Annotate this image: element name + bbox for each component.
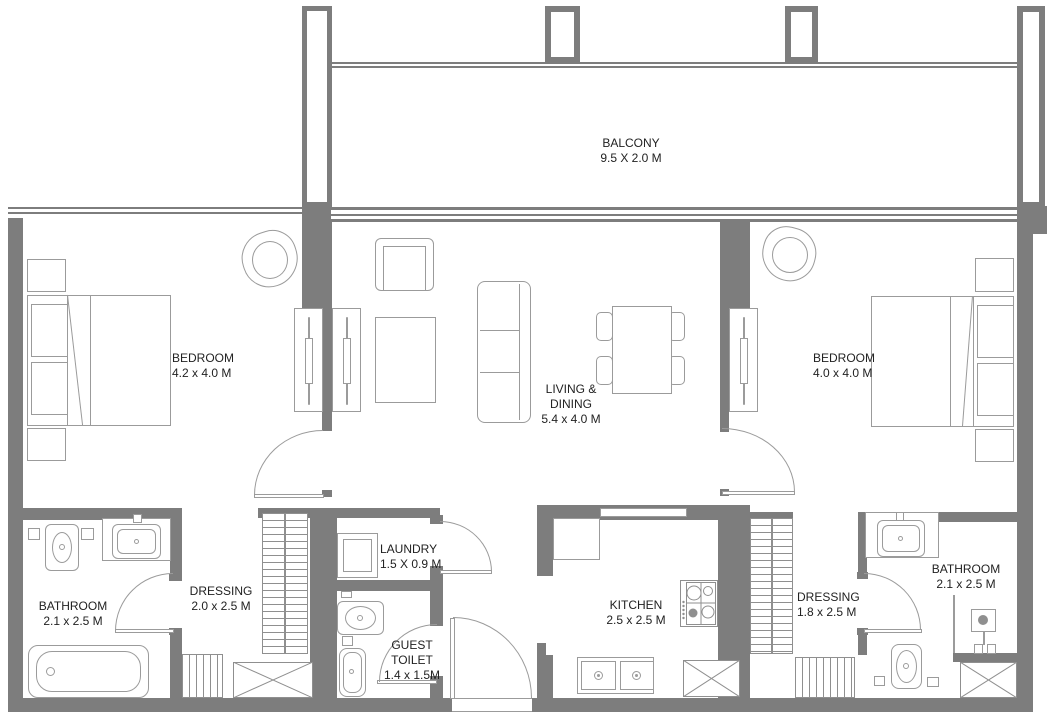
room-name: GUEST bbox=[377, 638, 447, 653]
room-label-bedroom-right: BEDROOM 4.0 x 4.0 M bbox=[813, 351, 903, 381]
panel-handle bbox=[343, 338, 351, 384]
dining-chair bbox=[596, 356, 613, 385]
room-dims: 2.5 x 2.5 M bbox=[596, 613, 676, 628]
column-mid bbox=[545, 6, 580, 63]
stove bbox=[680, 580, 718, 627]
sofa-back-line bbox=[519, 284, 520, 420]
room-dims: 4.0 x 4.0 M bbox=[813, 366, 903, 381]
room-label-bathroom-right: BATHROOM 2.1 x 2.5 M bbox=[926, 562, 1006, 592]
room-label-dressing-right: DRESSING 1.8 x 2.5 M bbox=[797, 590, 867, 620]
toilet-drain bbox=[59, 544, 65, 550]
shaft-x-box bbox=[960, 662, 1017, 698]
door-arc-bathroom-right bbox=[864, 573, 921, 630]
column-right-mid bbox=[785, 6, 818, 63]
wall-bathR-inner bbox=[953, 653, 1017, 662]
room-name: LIVING & bbox=[521, 382, 621, 397]
window-band-bedroom-left bbox=[8, 207, 302, 214]
wardrobe-shelves bbox=[750, 518, 793, 654]
room-dims: 1.8 x 2.5 M bbox=[797, 605, 867, 620]
panel-handle bbox=[305, 338, 313, 384]
wardrobe-panel bbox=[332, 308, 361, 412]
room-name: DRESSING bbox=[797, 590, 867, 605]
wall-kitchen-left-upper bbox=[537, 508, 553, 576]
bed-sheet-line bbox=[90, 295, 91, 426]
panel-handle bbox=[740, 338, 748, 384]
wall-divider-right-wide bbox=[720, 222, 750, 308]
toilet-accessory bbox=[28, 528, 40, 540]
bathR-shower-partition bbox=[953, 595, 955, 653]
wall-kitchen-left-lower2 bbox=[545, 655, 553, 698]
wall-bathL-dressL-lower bbox=[170, 634, 182, 700]
toilet-drain bbox=[357, 615, 363, 621]
wardrobe-panel bbox=[729, 308, 758, 412]
wall-outer-right bbox=[1017, 207, 1033, 712]
shaft-x-box bbox=[683, 660, 740, 697]
closet-hanging bbox=[182, 654, 223, 698]
bed-headboard-line bbox=[973, 296, 974, 427]
shaft-x-box bbox=[233, 662, 313, 698]
pillow bbox=[977, 363, 1014, 416]
wall-corner-block-right bbox=[1017, 206, 1047, 234]
toilet-accessory bbox=[927, 677, 939, 687]
room-name: BEDROOM bbox=[172, 351, 262, 366]
wall-outer-left bbox=[8, 218, 23, 712]
sofa-seat-line bbox=[480, 330, 520, 331]
floor-plan: BALCONY 9.5 X 2.0 M BEDROOM 4.2 x 4.0 M … bbox=[0, 0, 1052, 721]
shower-foot bbox=[974, 644, 983, 654]
kitchen-counter bbox=[553, 518, 600, 560]
dining-chair bbox=[596, 312, 613, 341]
toilet-accessory bbox=[874, 676, 885, 686]
wall-laundry-guestT bbox=[310, 580, 443, 591]
bathtub-drain bbox=[46, 667, 55, 676]
toilet-accessory bbox=[81, 528, 94, 540]
column-left bbox=[302, 6, 332, 207]
room-name: DRESSING bbox=[181, 584, 261, 599]
room-label-balcony: BALCONY 9.5 X 2.0 M bbox=[556, 136, 706, 166]
wall-guestT-right bbox=[430, 573, 443, 623]
paper-holder bbox=[341, 591, 352, 598]
door-arc-laundry bbox=[440, 521, 492, 572]
nightstand bbox=[975, 429, 1014, 462]
bed-headboard-line bbox=[67, 295, 68, 426]
room-label-kitchen: KITCHEN 2.5 x 2.5 M bbox=[596, 598, 676, 628]
pillow bbox=[977, 305, 1014, 358]
balcony-top-rail bbox=[332, 62, 1017, 68]
sofa-seat-line bbox=[480, 372, 520, 373]
sink-drain-dot bbox=[635, 674, 638, 677]
column-left-base bbox=[302, 205, 332, 310]
room-dims: 1.5 X 0.9 M bbox=[380, 557, 442, 572]
room-label-laundry: LAUNDRY 1.5 X 0.9 M bbox=[380, 542, 442, 572]
room-dims: 2.0 x 2.5 M bbox=[181, 599, 261, 614]
door-arc-entrance bbox=[453, 617, 532, 698]
pillow bbox=[31, 304, 68, 357]
sink-tap bbox=[342, 636, 353, 646]
door-arc-bathroom-left bbox=[115, 573, 173, 631]
room-label-guest-toilet: GUEST TOILET 1.4 x 1.5M bbox=[377, 638, 447, 683]
door-hinge bbox=[322, 424, 332, 431]
wardrobe-panel bbox=[294, 308, 323, 412]
closet-hanging bbox=[795, 657, 855, 698]
room-name: BEDROOM bbox=[813, 351, 903, 366]
entrance-threshold bbox=[452, 698, 532, 712]
room-dims: 1.4 x 1.5M bbox=[377, 668, 447, 683]
window-band-living bbox=[331, 207, 1017, 222]
room-dims: 9.5 X 2.0 M bbox=[556, 151, 706, 166]
room-name: LAUNDRY bbox=[380, 542, 442, 557]
sink-drain-dot bbox=[597, 674, 600, 677]
door-arc-bedroom-left bbox=[254, 430, 323, 495]
door-arc-bedroom-right bbox=[722, 428, 795, 492]
washing-machine-inner bbox=[343, 539, 372, 572]
wall-outer-bottom-left bbox=[8, 698, 452, 712]
nightstand bbox=[975, 258, 1014, 292]
toilet-drain bbox=[903, 663, 909, 669]
column-right bbox=[1017, 6, 1045, 208]
bed-sheet-line bbox=[950, 296, 951, 427]
kitchen-top-cabinet bbox=[600, 508, 687, 517]
room-dims: 4.2 x 4.0 M bbox=[172, 366, 262, 381]
wardrobe-rail bbox=[284, 514, 286, 653]
room-dims: 5.4 x 4.0 M bbox=[521, 412, 621, 427]
wardrobe-rail bbox=[771, 519, 773, 653]
shower-foot bbox=[987, 644, 996, 654]
pillow bbox=[31, 362, 68, 415]
armchair-seat bbox=[383, 246, 426, 291]
wall-guestT-right-stub bbox=[430, 683, 443, 699]
room-dims: 2.1 x 2.5 M bbox=[926, 577, 1006, 592]
room-name: TOILET bbox=[377, 653, 447, 668]
nightstand bbox=[27, 428, 66, 461]
tv-unit bbox=[375, 317, 436, 403]
wall-divider-right bbox=[720, 308, 729, 430]
room-name: BATHROOM bbox=[926, 562, 1006, 577]
nightstand bbox=[27, 259, 66, 292]
room-label-bedroom-left: BEDROOM 4.2 x 4.0 M bbox=[172, 351, 262, 381]
sink-drain bbox=[134, 539, 139, 544]
basin-drain bbox=[349, 669, 354, 674]
wall-bathL-dressL-upper bbox=[170, 508, 182, 578]
room-label-living-dining: LIVING & DINING 5.4 x 4.0 M bbox=[521, 382, 621, 427]
room-name: BALCONY bbox=[556, 136, 706, 151]
room-label-dressing-left: DRESSING 2.0 x 2.5 M bbox=[181, 584, 261, 614]
sink-drain bbox=[898, 536, 903, 541]
window-glass-line bbox=[331, 214, 1017, 216]
armchair-round-inner bbox=[772, 237, 808, 273]
wall-dressR-bathR-lower bbox=[858, 633, 867, 655]
sink-tap bbox=[133, 514, 142, 523]
wall-dressL-laundry-vert bbox=[310, 518, 337, 698]
room-name: BATHROOM bbox=[33, 599, 113, 614]
shower-pipe bbox=[983, 632, 985, 645]
shower-head-dot bbox=[978, 615, 988, 625]
room-name: KITCHEN bbox=[596, 598, 676, 613]
room-dims: 2.1 x 2.5 M bbox=[33, 614, 113, 629]
wall-outer-bottom-right bbox=[532, 698, 1033, 712]
armchair-round-inner bbox=[252, 241, 288, 279]
wardrobe-shelves bbox=[262, 513, 308, 654]
room-label-bathroom-left: BATHROOM 2.1 x 2.5 M bbox=[33, 599, 113, 629]
wall-divider-left bbox=[322, 310, 332, 430]
room-name: DINING bbox=[521, 397, 621, 412]
dining-table bbox=[612, 306, 672, 394]
